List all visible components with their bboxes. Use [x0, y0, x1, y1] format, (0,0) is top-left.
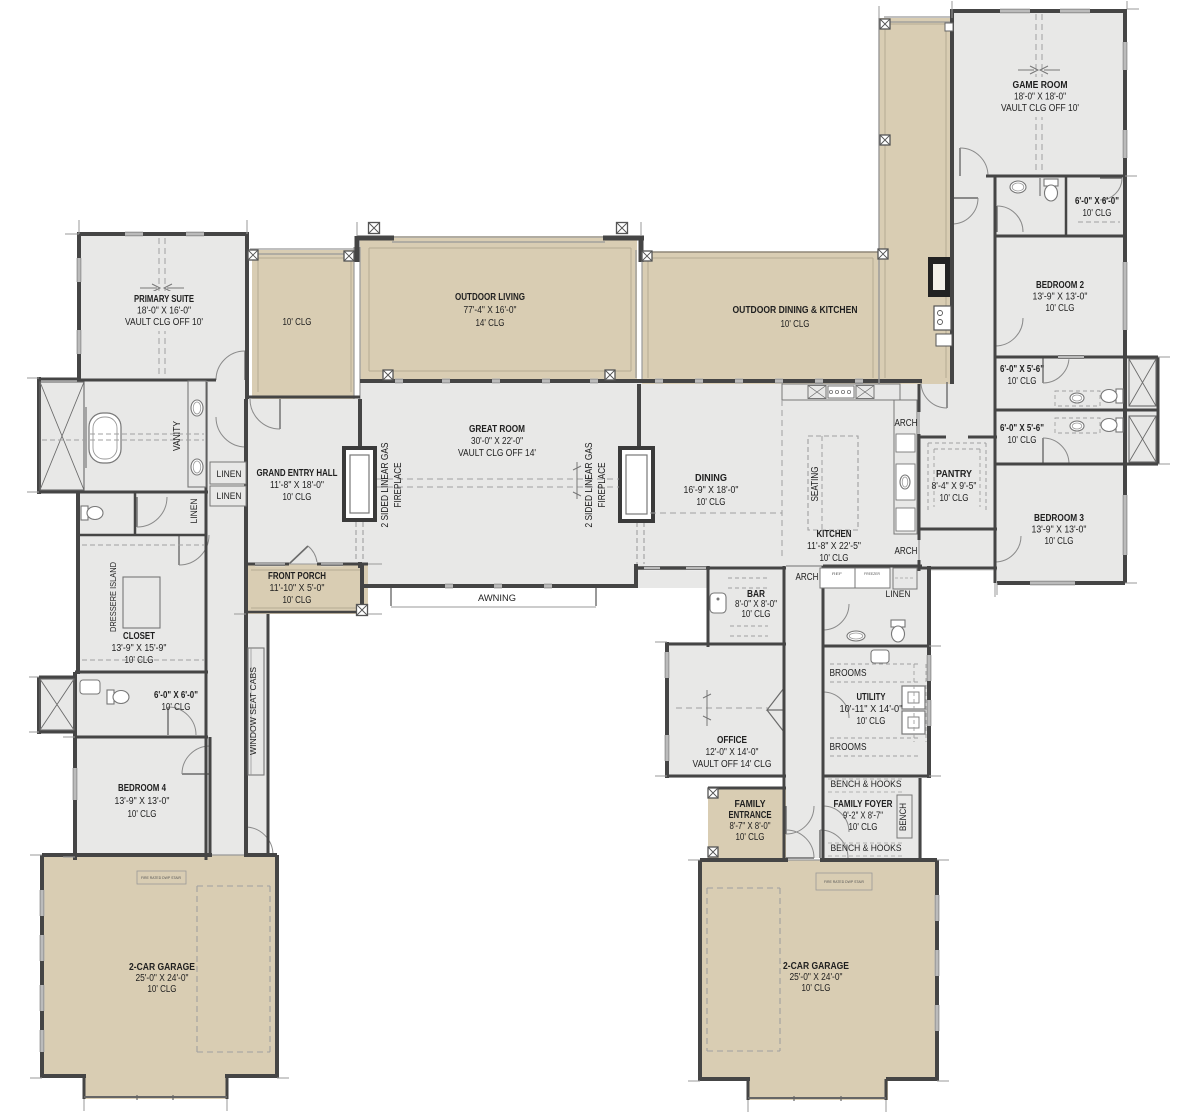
svg-text:10' CLG: 10' CLG	[820, 553, 849, 564]
svg-text:10' CLG: 10' CLG	[128, 809, 157, 820]
svg-text:FIRE RATED DWP STAIR: FIRE RATED DWP STAIR	[141, 875, 181, 880]
svg-text:KITCHEN: KITCHEN	[817, 529, 852, 540]
svg-text:10' CLG: 10' CLG	[1045, 536, 1074, 547]
svg-text:9'-2" X 8'-7": 9'-2" X 8'-7"	[843, 811, 883, 822]
svg-text:10' CLG: 10' CLG	[162, 702, 191, 713]
svg-text:10' CLG: 10' CLG	[148, 984, 177, 995]
svg-text:11'-8" X 18'-0": 11'-8" X 18'-0"	[270, 480, 324, 491]
svg-text:OUTDOOR LIVING: OUTDOOR LIVING	[455, 292, 525, 303]
svg-text:13'-9" X 13'-0": 13'-9" X 13'-0"	[115, 796, 170, 807]
svg-text:WINDOW SEAT CABS: WINDOW SEAT CABS	[248, 667, 258, 755]
svg-text:10' CLG: 10' CLG	[697, 497, 726, 508]
svg-text:18'-0" X 18'-0": 18'-0" X 18'-0"	[1014, 92, 1066, 103]
svg-text:LINEN: LINEN	[217, 469, 242, 479]
svg-text:6'-0" X 6'-0": 6'-0" X 6'-0"	[154, 690, 198, 701]
svg-text:VANITY: VANITY	[172, 421, 183, 451]
svg-text:12'-0" X 14'-0": 12'-0" X 14'-0"	[706, 747, 759, 758]
svg-text:10' CLG: 10' CLG	[1008, 376, 1037, 387]
svg-text:BROOMS: BROOMS	[830, 742, 867, 753]
svg-text:10' CLG: 10' CLG	[857, 716, 886, 727]
svg-text:BEDROOM 3: BEDROOM 3	[1034, 513, 1084, 524]
svg-text:LINEN: LINEN	[217, 491, 242, 501]
svg-text:11'-8" X 22'-5": 11'-8" X 22'-5"	[807, 541, 861, 552]
svg-text:2-CAR GARAGE: 2-CAR GARAGE	[783, 961, 849, 972]
svg-text:10' CLG: 10' CLG	[1046, 303, 1075, 314]
svg-text:6'-0" X 5'-6": 6'-0" X 5'-6"	[1000, 423, 1044, 434]
svg-text:30'-0" X 22'-0": 30'-0" X 22'-0"	[471, 436, 523, 447]
svg-text:VAULT CLG OFF 10': VAULT CLG OFF 10'	[125, 317, 203, 328]
svg-text:77'-4" X 16'-0": 77'-4" X 16'-0"	[464, 305, 517, 316]
svg-text:2 SIDED LINEAR GAS: 2 SIDED LINEAR GAS	[380, 442, 391, 527]
svg-text:REF: REF	[832, 571, 843, 576]
svg-text:8'-4" X 9'-5": 8'-4" X 9'-5"	[932, 481, 977, 492]
svg-text:DRESSERE ISLAND: DRESSERE ISLAND	[108, 562, 118, 632]
svg-text:2-CAR GARAGE: 2-CAR GARAGE	[129, 962, 195, 973]
svg-text:6'-0" X 6'-0": 6'-0" X 6'-0"	[1075, 196, 1119, 207]
svg-text:10'-11" X 14'-0": 10'-11" X 14'-0"	[840, 704, 903, 715]
svg-text:PANTRY: PANTRY	[936, 469, 972, 480]
svg-text:BEDROOM 2: BEDROOM 2	[1036, 280, 1084, 291]
svg-text:VAULT OFF 14' CLG: VAULT OFF 14' CLG	[693, 759, 772, 770]
svg-text:ARCH: ARCH	[796, 572, 819, 583]
svg-text:10' CLG: 10' CLG	[802, 983, 831, 994]
svg-text:FREEZER: FREEZER	[864, 571, 880, 576]
svg-text:BENCH: BENCH	[898, 803, 908, 831]
svg-text:13'-9" X 13'-0": 13'-9" X 13'-0"	[1032, 525, 1087, 536]
svg-text:FRONT PORCH: FRONT PORCH	[268, 571, 326, 582]
svg-text:16'-9" X 18'-0": 16'-9" X 18'-0"	[684, 485, 739, 496]
svg-text:UTILITY: UTILITY	[857, 692, 886, 703]
svg-text:10' CLG: 10' CLG	[283, 492, 312, 503]
svg-text:18'-0" X 16'-0": 18'-0" X 16'-0"	[137, 306, 191, 317]
svg-text:ENTRANCE: ENTRANCE	[729, 810, 772, 821]
svg-text:10' CLG: 10' CLG	[283, 317, 312, 328]
svg-text:BROOMS: BROOMS	[830, 668, 867, 679]
svg-text:13'-9" X 15'-9": 13'-9" X 15'-9"	[112, 643, 167, 654]
svg-text:11'-10" X 5'-0": 11'-10" X 5'-0"	[270, 583, 325, 594]
svg-text:LINEN: LINEN	[886, 589, 911, 599]
svg-text:BENCH & HOOKS: BENCH & HOOKS	[831, 843, 902, 854]
svg-text:GRAND ENTRY HALL: GRAND ENTRY HALL	[257, 468, 338, 479]
svg-text:8'-7" X 8'-0": 8'-7" X 8'-0"	[730, 821, 771, 832]
svg-text:14' CLG: 14' CLG	[476, 318, 505, 329]
svg-text:25'-0" X 24'-0": 25'-0" X 24'-0"	[790, 972, 843, 983]
svg-text:SEATING: SEATING	[810, 466, 821, 501]
svg-text:10' CLG: 10' CLG	[849, 822, 878, 833]
svg-text:FAMILY FOYER: FAMILY FOYER	[834, 799, 894, 810]
svg-text:10' CLG: 10' CLG	[781, 319, 810, 330]
svg-text:OUTDOOR DINING & KITCHEN: OUTDOOR DINING & KITCHEN	[733, 305, 858, 316]
svg-text:FIRE RATED DWP STAIR: FIRE RATED DWP STAIR	[824, 879, 864, 884]
svg-text:10' CLG: 10' CLG	[125, 655, 154, 666]
svg-text:FIREPLACE: FIREPLACE	[393, 462, 404, 507]
svg-text:FIREPLACE: FIREPLACE	[597, 462, 608, 507]
svg-text:13'-9" X 13'-0": 13'-9" X 13'-0"	[1033, 292, 1088, 303]
svg-text:FAMILY: FAMILY	[735, 799, 766, 810]
svg-text:LINEN: LINEN	[189, 499, 199, 524]
svg-text:10' CLG: 10' CLG	[1008, 435, 1037, 446]
svg-text:10' CLG: 10' CLG	[742, 609, 771, 620]
svg-text:CLOSET: CLOSET	[123, 631, 155, 642]
svg-text:GAME ROOM: GAME ROOM	[1013, 80, 1068, 91]
svg-text:BENCH & HOOKS: BENCH & HOOKS	[831, 779, 902, 790]
svg-text:10' CLG: 10' CLG	[736, 832, 765, 843]
svg-text:BEDROOM 4: BEDROOM 4	[118, 783, 166, 794]
svg-text:6'-0" X 5'-6": 6'-0" X 5'-6"	[1000, 364, 1044, 375]
svg-text:GREAT ROOM: GREAT ROOM	[469, 424, 525, 435]
svg-text:VAULT CLG OFF 10': VAULT CLG OFF 10'	[1001, 103, 1079, 114]
svg-text:VAULT CLG OFF 14': VAULT CLG OFF 14'	[458, 448, 536, 459]
svg-text:OFFICE: OFFICE	[717, 735, 747, 746]
svg-text:10' CLG: 10' CLG	[283, 595, 312, 606]
svg-text:10' CLG: 10' CLG	[940, 493, 969, 504]
svg-text:2 SIDED LINEAR GAS: 2 SIDED LINEAR GAS	[584, 442, 595, 527]
svg-text:AWNING: AWNING	[478, 593, 516, 604]
svg-text:PRIMARY SUITE: PRIMARY SUITE	[134, 294, 194, 305]
svg-text:25'-0" X 24'-0": 25'-0" X 24'-0"	[136, 973, 189, 984]
svg-text:DINING: DINING	[695, 473, 727, 484]
svg-text:ARCH: ARCH	[895, 418, 918, 429]
svg-text:10' CLG: 10' CLG	[1083, 208, 1112, 219]
svg-text:ARCH: ARCH	[895, 546, 918, 557]
